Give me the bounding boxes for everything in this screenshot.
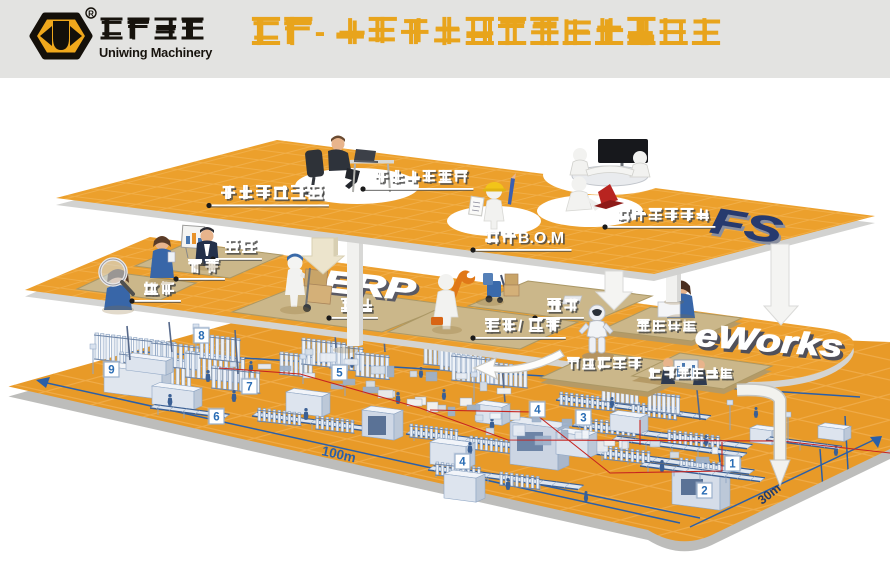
svg-text:Uniwing Machinery: Uniwing Machinery bbox=[99, 45, 213, 60]
svg-text:1: 1 bbox=[729, 459, 736, 471]
svg-text:6: 6 bbox=[213, 412, 219, 424]
svg-text:R: R bbox=[88, 10, 94, 19]
svg-text:9: 9 bbox=[108, 365, 114, 377]
svg-text:-: - bbox=[315, 14, 326, 50]
svg-text:4: 4 bbox=[459, 457, 466, 469]
svg-text:/: / bbox=[518, 318, 523, 335]
svg-text:3: 3 bbox=[580, 413, 586, 425]
svg-text:B.O.M: B.O.M bbox=[518, 230, 564, 247]
svg-text:7: 7 bbox=[246, 382, 252, 394]
svg-text:4: 4 bbox=[534, 405, 541, 417]
svg-text:5: 5 bbox=[336, 368, 343, 380]
svg-text:8: 8 bbox=[198, 331, 205, 343]
svg-text:2: 2 bbox=[701, 486, 707, 498]
